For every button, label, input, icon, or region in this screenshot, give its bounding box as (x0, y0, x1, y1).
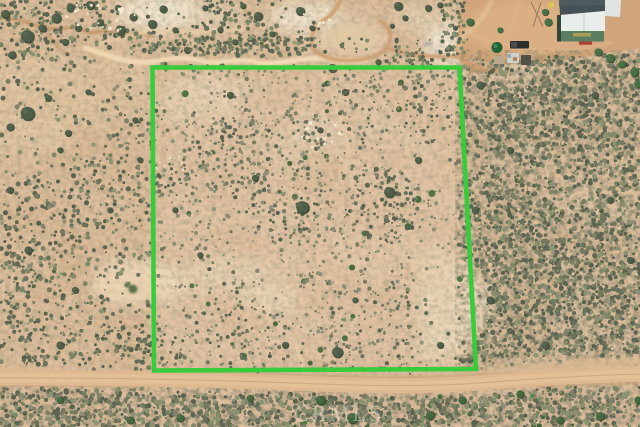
svg-text:CRMLS: CRMLS (294, 401, 384, 426)
